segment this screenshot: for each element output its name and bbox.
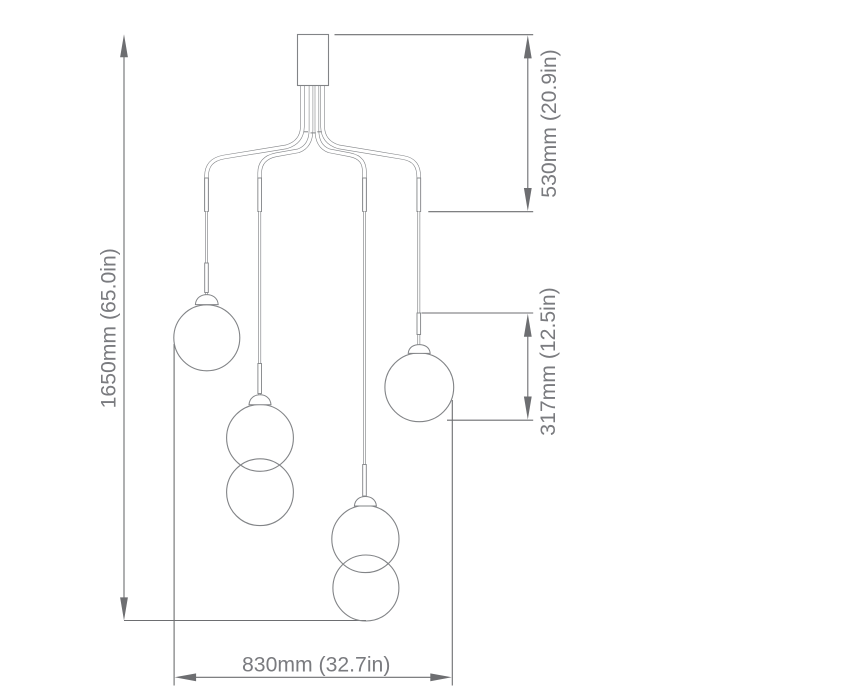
svg-text:830mm (32.7in): 830mm (32.7in): [242, 654, 390, 677]
svg-text:317mm (12.5in): 317mm (12.5in): [537, 287, 560, 435]
svg-text:530mm (20.9in): 530mm (20.9in): [538, 49, 561, 197]
svg-text:1650mm (65.0in): 1650mm (65.0in): [97, 248, 120, 408]
